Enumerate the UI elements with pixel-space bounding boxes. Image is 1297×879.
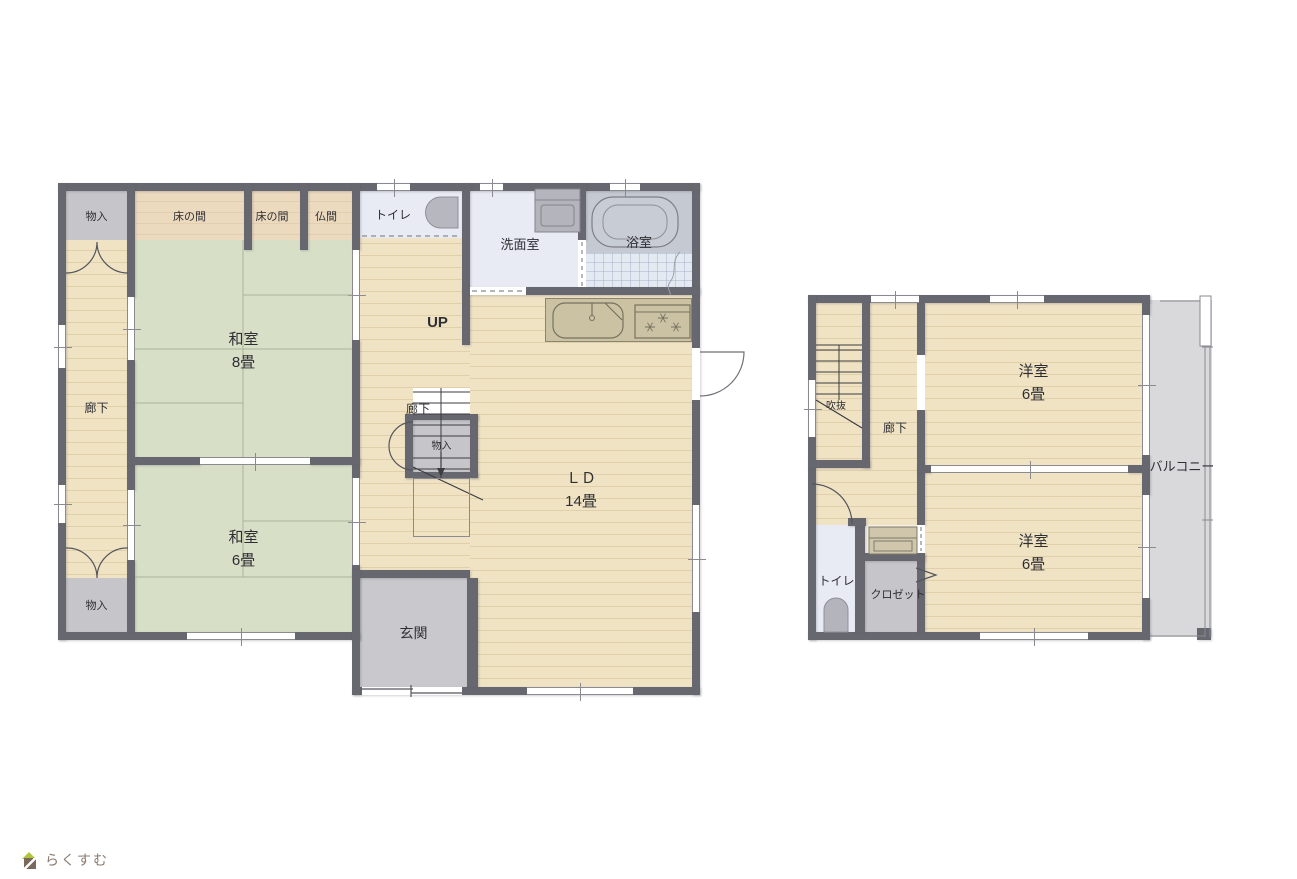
f1-washroomdoor-gap [470, 287, 526, 295]
living-dining-label: ＬＤ14畳 [470, 457, 692, 523]
western-room-top-label: 洋室6畳 [925, 352, 1142, 414]
f1-shoji-washitsu8 [352, 250, 360, 340]
f1-wall-corridor-a [127, 360, 135, 490]
balcony-label: バルコニー [1140, 456, 1224, 474]
f1-wall-partition-l [127, 457, 200, 465]
f1-stairs-bottom [405, 472, 478, 478]
f2-sliding-partition [931, 465, 1128, 473]
tokonoma-2-label: 床の間 [244, 191, 300, 240]
f1-shoji-corridor-2 [127, 490, 135, 560]
washroom-label: 洗面室 [462, 233, 578, 253]
f1-window-top-1 [377, 183, 410, 191]
logo-text: らくすむ [45, 850, 109, 870]
f2-closet-shelf-wall [865, 553, 925, 561]
f1-bathdoor-gap [578, 240, 586, 287]
hallway-center-label: 廊下 [398, 398, 438, 418]
entrance-label: 玄関 [360, 578, 467, 687]
f1-entry-gap [362, 687, 462, 695]
f1-window-top-3 [610, 183, 640, 191]
f1-shoji-washitsu6 [352, 478, 360, 565]
f1-window-left-1 [58, 325, 66, 368]
f2-toilet-top-stub [848, 518, 866, 526]
f1-genkan-top [352, 570, 470, 578]
toilet1-label: トイレ [360, 191, 426, 238]
f1-shoji-corridor-1 [127, 297, 135, 360]
f1-window-bottom-left [187, 632, 295, 640]
f1-wall-partition-r [310, 457, 360, 465]
house-icon [22, 852, 39, 869]
washitsu-8-label: 和室8畳 [135, 322, 352, 380]
tokonoma-1-label: 床の間 [135, 191, 244, 240]
f1-wall-washitsu-a [352, 183, 360, 250]
f1-window-right [692, 505, 700, 612]
f1-sliding-partition [200, 457, 310, 465]
toilet2-label: トイレ [812, 570, 861, 590]
f1-backdoor-gap [692, 348, 700, 400]
floorplan-canvas: 物入 床の間 床の間 仏間 トイレ 洗面室 浴室 和室8畳 和室6畳 廊下 UP… [0, 0, 1297, 879]
f2-stairs-right-wall [862, 303, 870, 468]
f2-window-top-1 [871, 295, 919, 303]
f1-stairs-left [405, 414, 413, 478]
storage-top-left-label: 物入 [66, 191, 127, 240]
hallway2-label: 廊下 [868, 417, 922, 437]
f2-balcony-stub [1197, 628, 1211, 640]
f2-window-bottom [980, 632, 1088, 640]
stairs-up-label: UP [410, 310, 465, 334]
f2-door-gap-top-room [917, 355, 925, 410]
f1-window-left-2 [58, 485, 66, 523]
f2-stairs-bottom-wall [808, 460, 870, 468]
storage-bottom-left-label: 物入 [66, 578, 127, 632]
f2-boundary-a [1142, 295, 1150, 315]
kitchen-counter [545, 298, 692, 342]
stairs-storage-label: 物入 [413, 430, 470, 458]
f1-wall-left [58, 183, 66, 640]
f2-wall-bottom [808, 632, 1150, 640]
f1-wall-corridor-b [127, 560, 135, 632]
f1-wall-right [692, 183, 700, 695]
butsuma-label: 仏間 [300, 191, 352, 240]
closet-label: クロゼット [858, 585, 938, 603]
atrium-label: 吹抜 [810, 395, 862, 413]
site-logo: らくすむ [22, 850, 109, 870]
hallway-left-label: 廊下 [66, 392, 127, 422]
f2-rooms-left-a [917, 303, 925, 355]
f1-wall-washroom-bath [578, 183, 586, 240]
f2-wall-top [808, 295, 1150, 303]
f2-window-balcony-bottom [1142, 495, 1150, 598]
f2-closet-front-gap [917, 525, 925, 553]
f1-genkan-right [467, 578, 478, 687]
f1-wall-storage-tl [127, 183, 135, 297]
bath-label: 浴室 [586, 232, 692, 250]
f2-partition-stub-l [917, 465, 931, 473]
f2-window-top-2 [990, 295, 1044, 303]
f2-window-balcony-top [1142, 315, 1150, 455]
f2-boundary-c [1142, 598, 1150, 640]
f1-window-ld-bottom [527, 687, 633, 695]
f1-genkan-left [352, 570, 360, 695]
f1-window-top-2 [480, 183, 503, 191]
washitsu-6-label: 和室6畳 [135, 520, 352, 578]
western-room-bottom-label: 洋室6畳 [925, 522, 1142, 584]
